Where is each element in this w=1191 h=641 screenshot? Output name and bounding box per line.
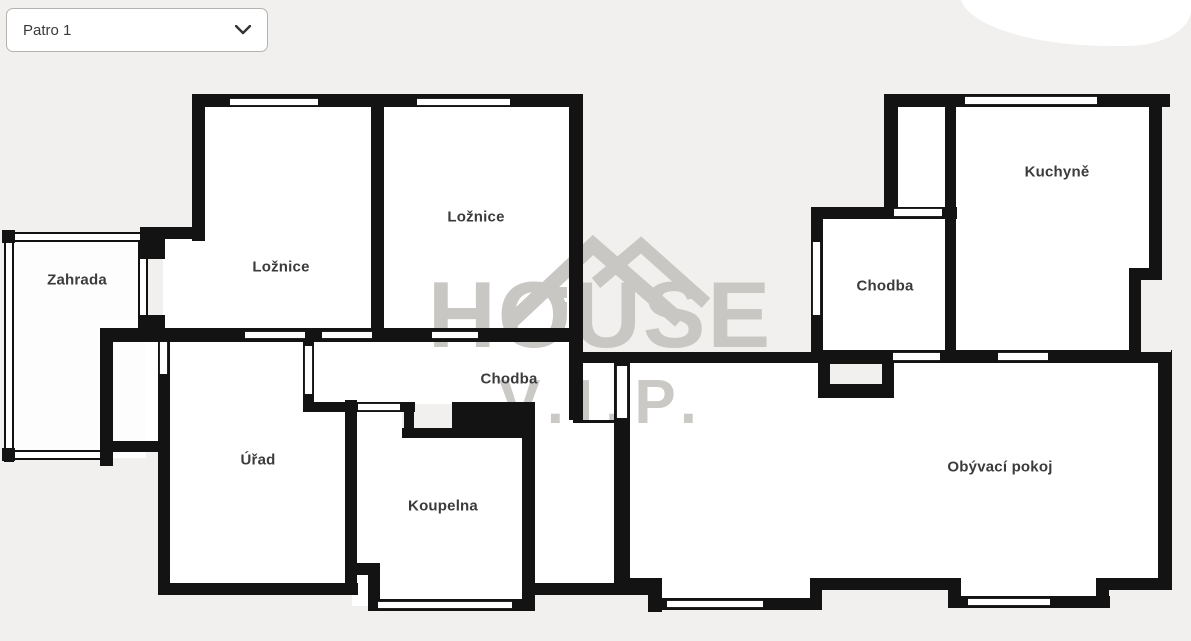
room-label-loznice-left: Ložnice: [252, 259, 309, 276]
door-living-left: [616, 366, 628, 418]
garden-top-wall: [4, 232, 148, 242]
window-hall-right-left: [812, 242, 821, 315]
room-label-koupelna: Koupelna: [408, 498, 478, 515]
living-right-wall: [1158, 350, 1172, 590]
living-bottom-up3: [1104, 578, 1172, 590]
garden-corner-tick-tl: [2, 230, 15, 243]
room-label-urad: Úřad: [241, 452, 276, 469]
door-office-bedroom: [245, 331, 305, 339]
office-bottom-wall: [158, 583, 358, 595]
room-label-chodba-right: Chodba: [856, 278, 913, 295]
garden-bottom-wall: [4, 450, 112, 460]
floor-plan: HOUSE V.I.P. ZahradaLožniceLožniceChodba…: [0, 0, 1191, 641]
room-label-zahrada: Zahrada: [47, 272, 107, 289]
office-left-wall: [158, 340, 170, 595]
room-label-chodba-center: Chodba: [480, 371, 537, 388]
window-office-corridor: [304, 346, 313, 394]
chevron-down-icon: [235, 25, 251, 35]
window-living-bottom-right: [968, 598, 1050, 606]
kitchen-right-wall-up: [1149, 94, 1162, 280]
door-living-hall: [893, 352, 940, 361]
shaft-notch-inner: [830, 364, 882, 384]
living-room-floor: [624, 357, 1170, 578]
window-bathroom-bottom: [378, 601, 512, 609]
window-living-top: [998, 352, 1048, 361]
bedrooms-divider-wall: [371, 100, 384, 340]
kitchen-divider-wall: [945, 100, 956, 356]
door-corridor-bedroom: [322, 331, 372, 339]
bedroom-left-floor-ext: [163, 239, 230, 334]
floor-selector-dropdown[interactable]: Patro 1: [6, 8, 268, 52]
kitchen-left-wall: [884, 94, 898, 213]
garden-corner-tick-bl: [2, 448, 15, 461]
window-corridor-top: [432, 331, 478, 339]
window-kitchen-top: [965, 96, 1097, 105]
kitchen-right-wall-low: [1129, 268, 1141, 360]
corridor-notch-inner: [414, 412, 452, 428]
window-office-left: [159, 342, 168, 374]
window-bedroom-left-top: [230, 98, 318, 106]
window-bedroom-top-top: [417, 98, 510, 106]
bedroom-step-stub: [140, 227, 165, 259]
kitchen-step-outer: [1141, 280, 1171, 352]
window-living-bottom-left: [667, 600, 763, 608]
corridor-ext-top-wall: [569, 352, 815, 363]
room-label-loznice-top: Ložnice: [447, 209, 504, 226]
strip-room-floor: [896, 106, 947, 211]
room-label-kuchyne: Kuchyně: [1025, 164, 1090, 181]
garden-left-wall: [4, 232, 14, 462]
kitchen-floor: [947, 106, 1149, 356]
room-label-obyvaci-pokoj: Obývací pokoj: [947, 459, 1052, 476]
garden-floor: [8, 236, 146, 458]
floor-selector-value: Patro 1: [23, 22, 71, 39]
utility-bottom-wall: [100, 441, 170, 452]
corridor-notch-stub: [404, 402, 414, 438]
bedroom-top-right-wall: [569, 94, 583, 420]
bedroom-left-wall: [192, 94, 205, 241]
door-corridor-bathroom: [358, 403, 400, 411]
door-hall-strip-room: [894, 208, 942, 217]
passage-threshold: [573, 420, 616, 423]
living-bottom-up2: [818, 578, 954, 590]
